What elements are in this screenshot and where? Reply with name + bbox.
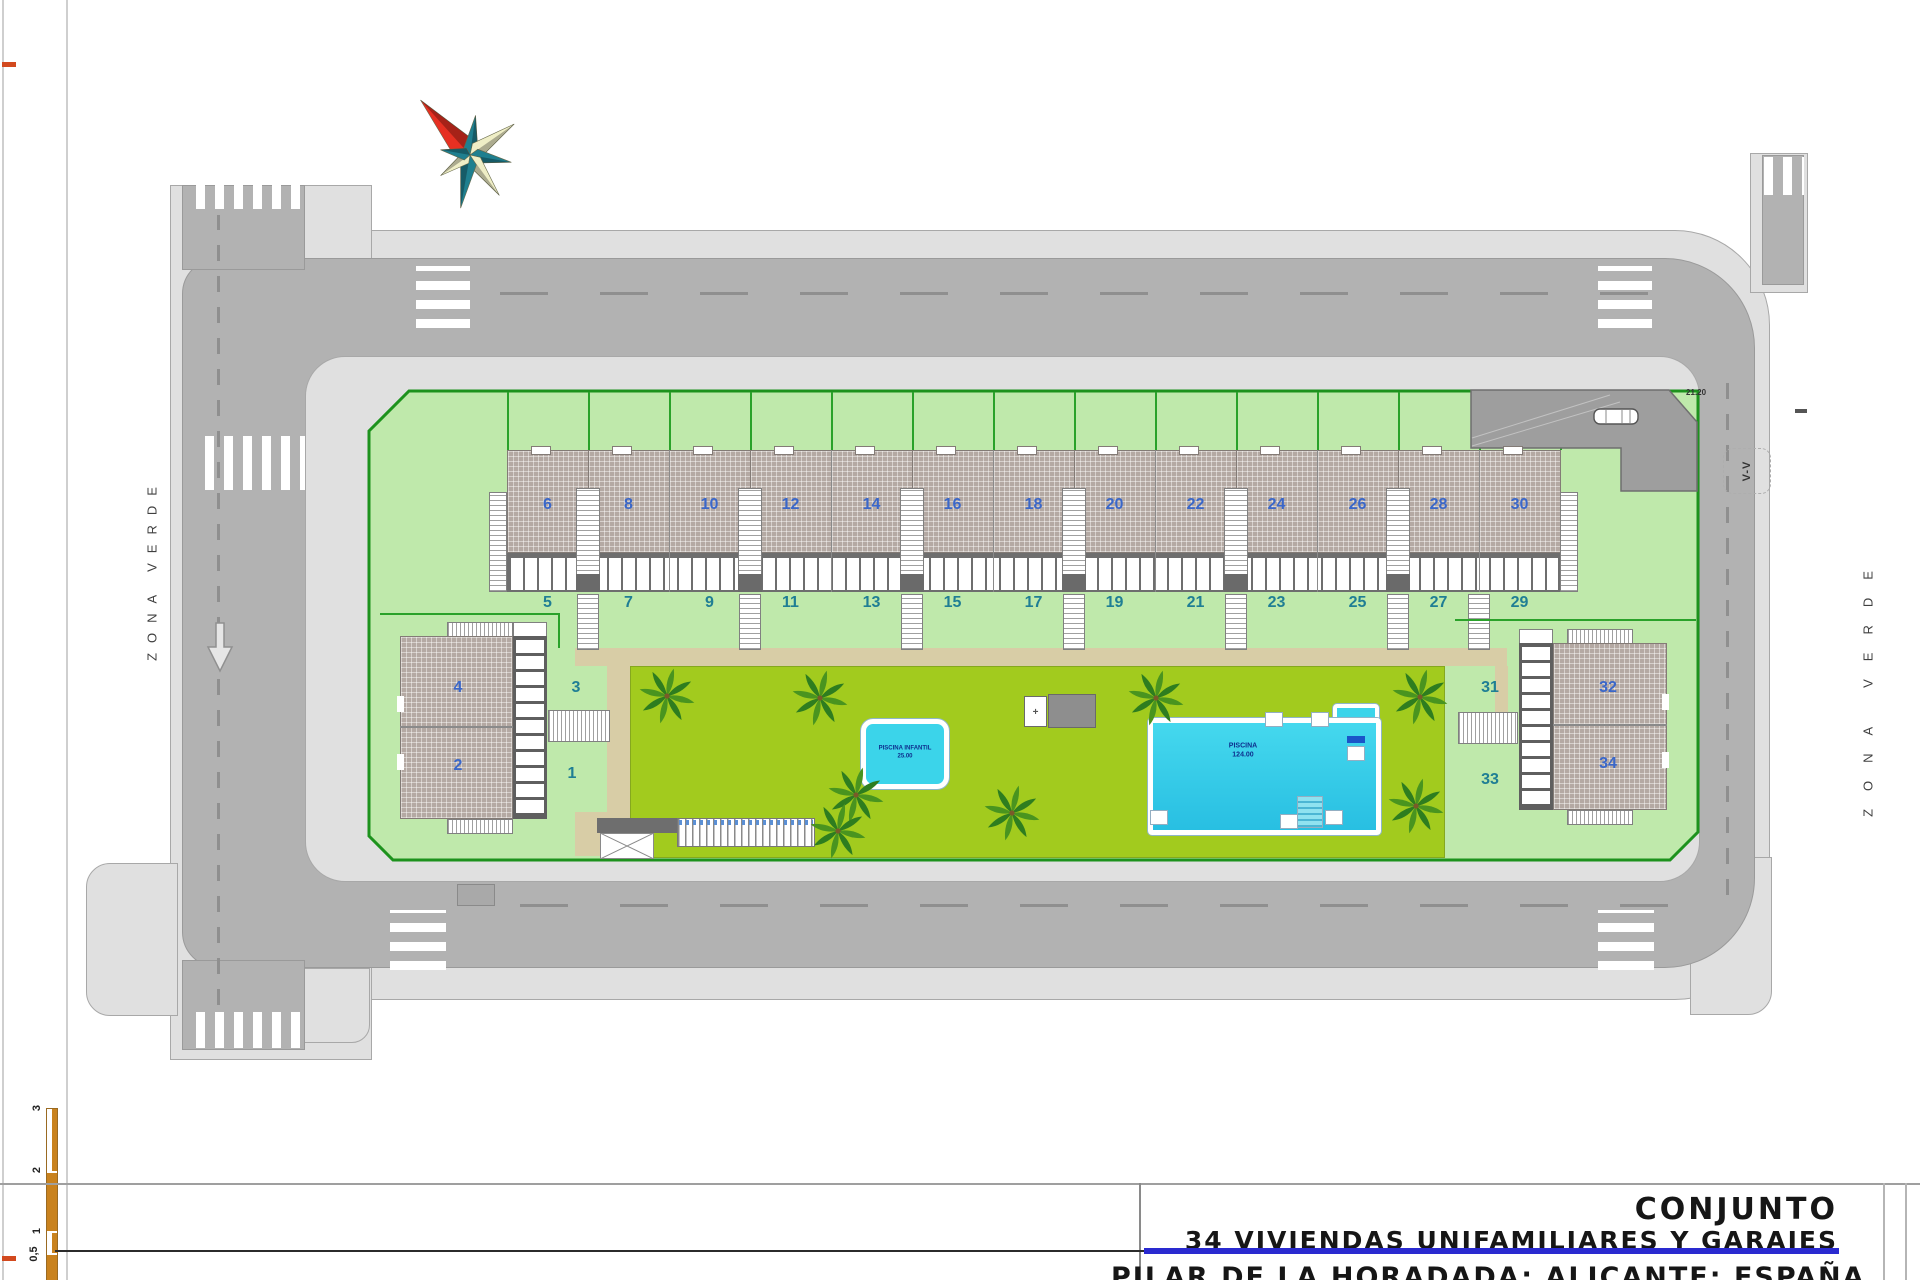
unit-number: 20 [1106, 496, 1124, 514]
plot-line [912, 392, 914, 450]
unit-number: 18 [1025, 496, 1043, 514]
lane-line [520, 904, 1680, 907]
titleblock-vline [1905, 1183, 1907, 1280]
driveway-dimension: 21.20 [1686, 388, 1706, 397]
unit-divider [669, 450, 670, 592]
section-marker: V-V [1741, 461, 1753, 482]
zona-verde-label-east: ZONA VERDE [1861, 553, 1876, 817]
roof-notch [1260, 446, 1280, 455]
scale-segment [47, 1173, 57, 1231]
spa-bench [1347, 736, 1365, 743]
unit-number: 30 [1511, 496, 1529, 514]
unit-number: 16 [944, 496, 962, 514]
scale-bar [46, 1108, 58, 1280]
stairs [1567, 629, 1633, 644]
title-rule [55, 1250, 1144, 1252]
roof-divider [400, 726, 513, 728]
zona-verde-label-west: ZONA VERDE [145, 477, 160, 661]
unit-number: 28 [1430, 496, 1448, 514]
scale-label: 0,5 [28, 1246, 40, 1261]
terrace [513, 636, 547, 819]
project-title: CONJUNTO [1150, 1192, 1838, 1227]
utility-block [1048, 694, 1096, 728]
roof-notch [1662, 752, 1669, 768]
plot-line [1236, 392, 1238, 450]
plot-line [507, 392, 509, 450]
plot-number: 29 [1511, 594, 1529, 612]
roof-notch [397, 754, 404, 770]
car-icon [1592, 405, 1642, 429]
roof-divider [1553, 724, 1667, 726]
scale-segment [52, 1109, 57, 1171]
pool-ladder [1325, 810, 1343, 825]
garden-access-stairs [577, 594, 599, 650]
garden-access-stairs [1387, 594, 1409, 650]
crosswalk [196, 183, 304, 209]
direction-arrow-icon [206, 622, 234, 674]
stairs [447, 819, 513, 834]
garden-path [575, 648, 1507, 666]
crosswalk [1764, 157, 1804, 195]
unit-number: 22 [1187, 496, 1205, 514]
plot-number: 19 [1106, 594, 1124, 612]
plot-number: 33 [1481, 771, 1499, 789]
road-tick [1795, 409, 1807, 413]
title-accent-bar [1144, 1248, 1839, 1254]
stair-landing [900, 574, 924, 592]
pergola-canopy [597, 818, 677, 833]
stair-landing [738, 574, 762, 592]
plot-number: 27 [1430, 594, 1448, 612]
roof-notch [936, 446, 956, 455]
site-plan-sheet: 21.20 + PISCINA INFANTIL25.00 PISCINA124… [0, 0, 1920, 1280]
titleblock-divider [0, 1183, 1920, 1185]
palm-tree-icon [1387, 777, 1445, 835]
shower-box: + [1024, 696, 1047, 727]
roof-notch [1179, 446, 1199, 455]
roof-notch [1098, 446, 1118, 455]
palm-tree-icon [791, 669, 849, 727]
roof-notch [855, 446, 875, 455]
stair-landing [1224, 574, 1248, 592]
plot-line [993, 392, 995, 450]
garden-access-stairs [1468, 594, 1490, 650]
scale-label: 1 [31, 1228, 43, 1234]
pool-ladder [1150, 810, 1168, 825]
crosswalk [1598, 910, 1654, 970]
unit-number: 10 [701, 496, 719, 514]
traffic-refuge [457, 884, 495, 906]
plot-line [1317, 392, 1319, 450]
crosswalk [196, 1012, 304, 1048]
garden-access-stairs [1225, 594, 1247, 650]
garden-access-stairs [1063, 594, 1085, 650]
plot-number: 3 [572, 679, 581, 697]
crosswalk [416, 266, 470, 328]
kids-pool-label: PISCINA INFANTIL25.00 [879, 746, 932, 761]
garden-access-stairs [548, 710, 610, 742]
plot-number: 17 [1025, 594, 1043, 612]
roof-notch [612, 446, 632, 455]
roof-notch [1341, 446, 1361, 455]
lane-line [217, 215, 220, 1005]
unit-number: 26 [1349, 496, 1367, 514]
garden-access-stairs [1458, 712, 1518, 744]
plot-number: 15 [944, 594, 962, 612]
garden-access-stairs [901, 594, 923, 650]
stairs [1567, 810, 1633, 825]
stairs [1560, 492, 1578, 592]
plot-line [380, 613, 560, 615]
ramp [600, 833, 654, 859]
plot-number: 23 [1268, 594, 1286, 612]
palm-tree-icon [1127, 669, 1185, 727]
plot-line [1455, 619, 1696, 621]
storage-box [1519, 629, 1553, 644]
plot-number: 13 [863, 594, 881, 612]
garden-access-stairs [739, 594, 761, 650]
plot-line [831, 392, 833, 450]
stairs [489, 492, 507, 592]
pool-ladder [1265, 712, 1283, 727]
east-building-roof [1553, 643, 1667, 810]
unit-number: 14 [863, 496, 881, 514]
roof-notch [1662, 694, 1669, 710]
roof-notch [1017, 446, 1037, 455]
palm-tree-icon [983, 784, 1041, 842]
unit-divider [1479, 450, 1480, 592]
titleblock-vline [1883, 1183, 1885, 1280]
unit-divider [993, 450, 994, 592]
pool-ladder [1280, 814, 1298, 829]
plot-line [1155, 392, 1157, 450]
unit-number: 2 [454, 757, 463, 775]
unit-number: 12 [782, 496, 800, 514]
plot-number: 9 [705, 594, 714, 612]
sheet-edge-tick [2, 1256, 16, 1261]
scale-label: 2 [31, 1167, 43, 1173]
pool-ladder [1347, 746, 1365, 761]
stair-landing [1386, 574, 1410, 592]
unit-number: 32 [1599, 679, 1617, 697]
plot-number: 7 [624, 594, 633, 612]
pool-steps [1297, 796, 1323, 828]
crosswalk [1598, 266, 1652, 328]
sheet-border-line [66, 0, 68, 1280]
plot-number: 5 [543, 594, 552, 612]
unit-number: 24 [1268, 496, 1286, 514]
palm-tree-icon [638, 667, 696, 725]
sheet-border-line [2, 0, 4, 1280]
unit-divider [1317, 450, 1318, 592]
scale-segment [47, 1255, 57, 1280]
stairs [447, 622, 513, 637]
plot-number: 31 [1481, 679, 1499, 697]
plot-line [558, 613, 560, 648]
parking-stall-markers [679, 820, 813, 825]
sidewalk-corner-bulge [300, 968, 370, 1043]
pool-ladder [1311, 712, 1329, 727]
sidewalk-corner-bulge [86, 863, 178, 1016]
roof-notch [693, 446, 713, 455]
plot-number: 25 [1349, 594, 1367, 612]
storage-box [513, 622, 547, 637]
lane-line [500, 292, 1680, 295]
plot-line [750, 392, 752, 450]
stair-landing [576, 574, 600, 592]
plot-line [1074, 392, 1076, 450]
plot-line [588, 392, 590, 450]
plot-number: 21 [1187, 594, 1205, 612]
roof-notch [1422, 446, 1442, 455]
plot-line [669, 392, 671, 450]
crosswalk [390, 910, 446, 970]
plot-number: 1 [568, 765, 577, 783]
plot-number: 11 [782, 594, 799, 612]
palm-tree-icon [809, 802, 867, 860]
unit-number: 6 [543, 496, 552, 514]
project-location: PILAR DE LA HORADADA; ALICANTE; ESPAÑA [1111, 1262, 1825, 1280]
unit-number: 4 [454, 679, 463, 697]
main-pool-label: PISCINA124.00 [1229, 742, 1257, 760]
terrace [1519, 643, 1553, 810]
sheet-edge-tick [2, 62, 16, 67]
unit-divider [831, 450, 832, 592]
roof-notch [1503, 446, 1523, 455]
roof-notch [397, 696, 404, 712]
scale-label: 3 [31, 1105, 43, 1111]
crosswalk [205, 436, 305, 490]
unit-number: 8 [624, 496, 633, 514]
unit-number: 34 [1599, 755, 1617, 773]
unit-divider [1155, 450, 1156, 592]
roof-notch [531, 446, 551, 455]
plot-line [1398, 392, 1400, 450]
palm-tree-icon [1391, 668, 1449, 726]
stair-landing [1062, 574, 1086, 592]
compass-rose-icon [385, 70, 555, 240]
roof-notch [774, 446, 794, 455]
